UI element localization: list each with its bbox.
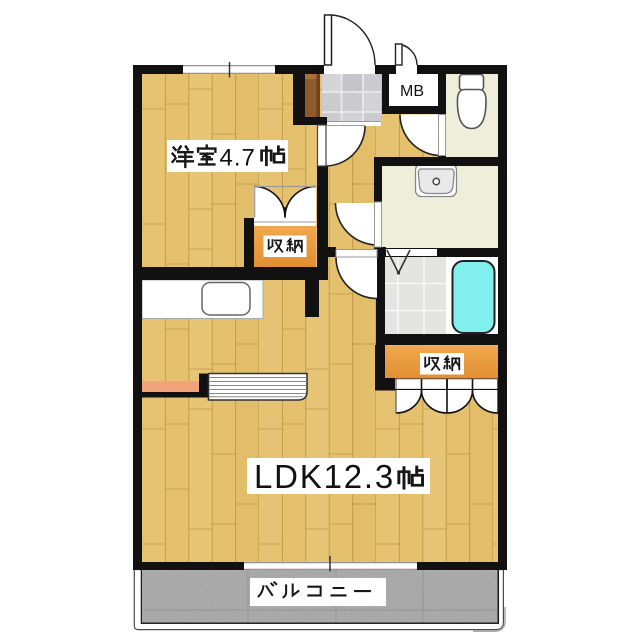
svg-text:MB: MB — [400, 83, 424, 100]
svg-text:4.7: 4.7 — [220, 145, 256, 172]
svg-text:LDK12.3: LDK12.3 — [254, 458, 395, 495]
